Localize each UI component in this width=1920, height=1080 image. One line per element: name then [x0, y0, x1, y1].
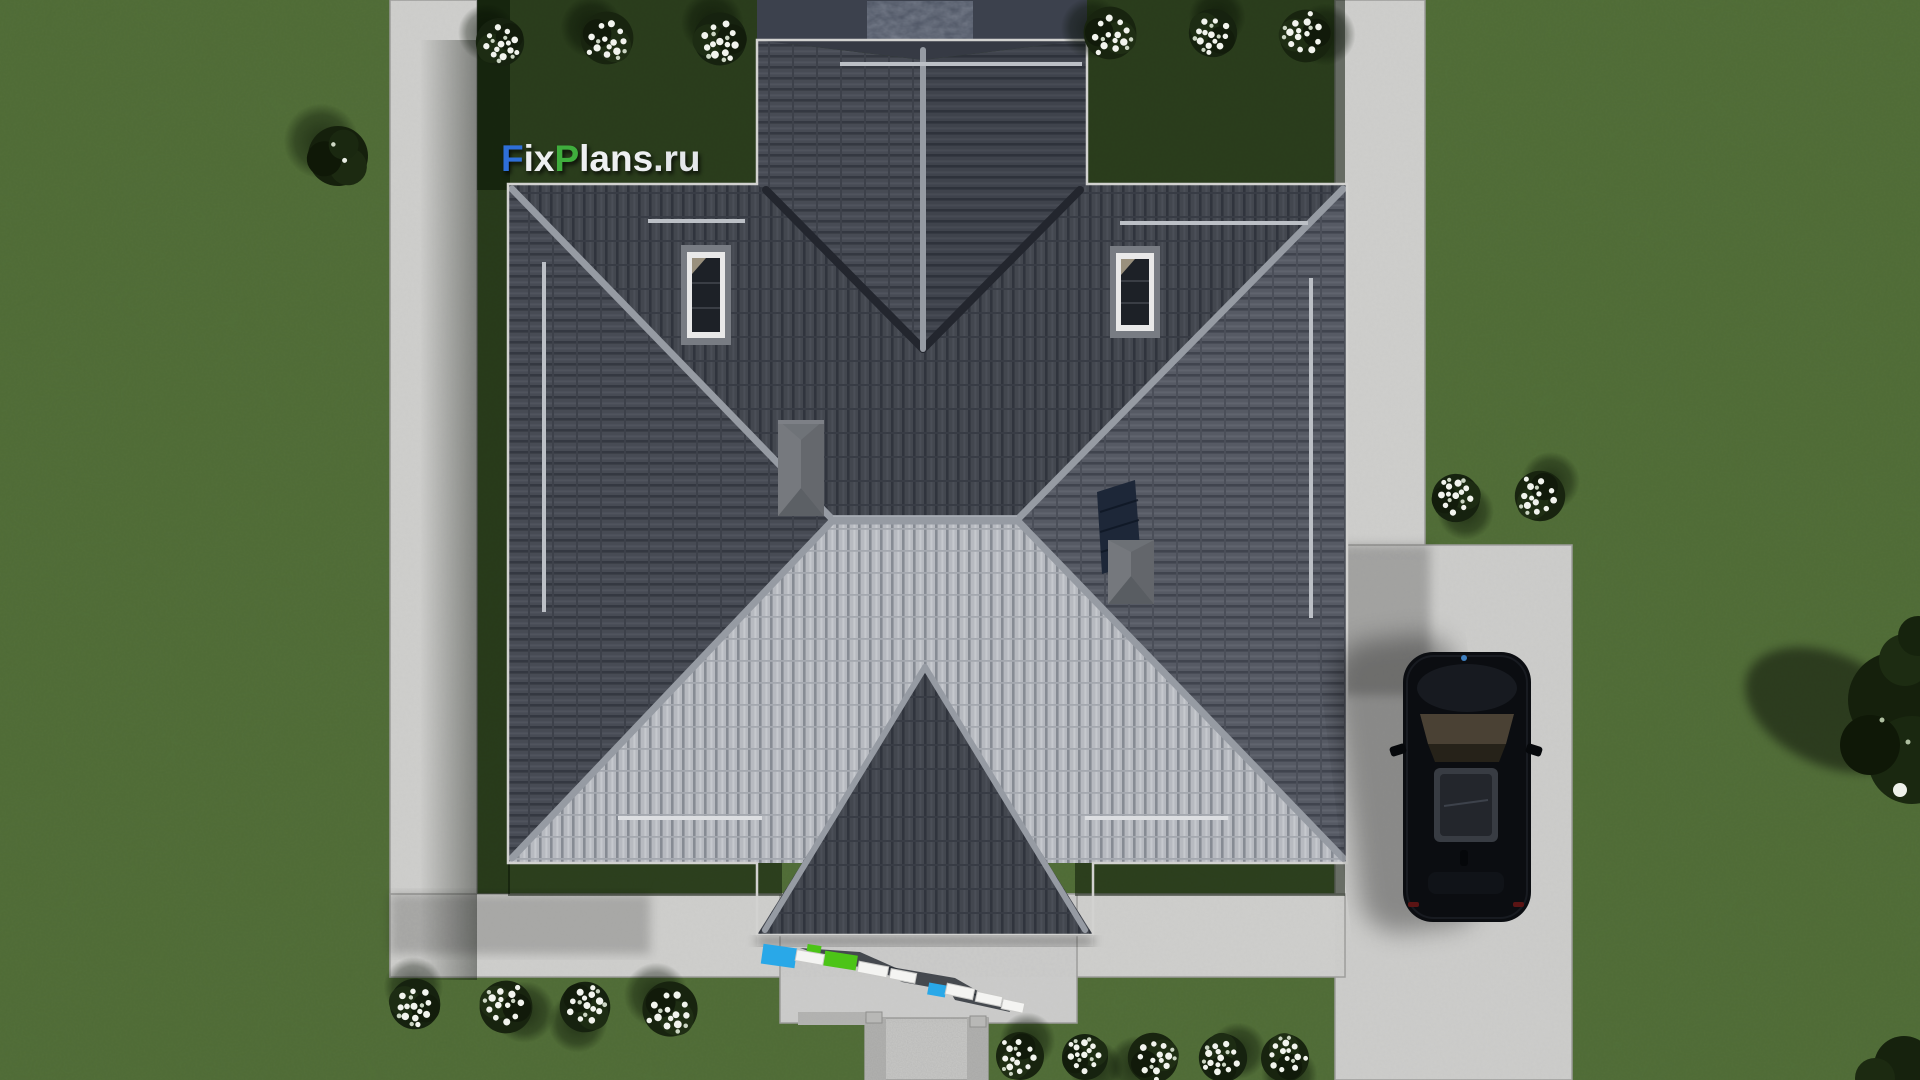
step-marker-left [866, 1012, 882, 1023]
terrace-chimney-texture [867, 1, 973, 42]
watermark-logo: FixPlans.ru [501, 140, 700, 177]
car-hood [1417, 664, 1517, 712]
inner-yard-left-shadow [477, 0, 510, 894]
aerial-render [0, 0, 1920, 1080]
car-shark-fin [1460, 850, 1468, 866]
white-flower-cluster [1893, 783, 1907, 797]
watermark-segment: lans [579, 138, 653, 179]
watermark-segment: F [501, 138, 524, 179]
porch-eave-shadow [757, 936, 1093, 946]
roof-vent-box [1108, 540, 1154, 604]
car-windshield-reflection [1420, 714, 1514, 744]
step-marker-right [970, 1016, 986, 1027]
car-windshield-lower [1428, 744, 1506, 762]
car-taillight-left [1408, 902, 1419, 907]
car-antenna-glint [1461, 655, 1467, 661]
skylight-right [1110, 246, 1160, 338]
watermark-segment: ix [524, 138, 555, 179]
car-taillight-right [1513, 902, 1524, 907]
inner-yard-bottomleft-shadow [508, 863, 782, 896]
house-shadow-on-path [420, 40, 477, 980]
car [1329, 629, 1544, 937]
chimney-center [778, 420, 824, 516]
soft-shadow-bottom-band [390, 894, 650, 954]
inner-yard-bottomright-shadow [1075, 863, 1345, 896]
watermark-segment: .ru [653, 138, 700, 179]
skylight-left [681, 245, 731, 345]
watermark-segment: P [554, 138, 579, 179]
scene-stage: FixPlans.ru [0, 0, 1920, 1080]
car-rear-window [1428, 872, 1504, 894]
